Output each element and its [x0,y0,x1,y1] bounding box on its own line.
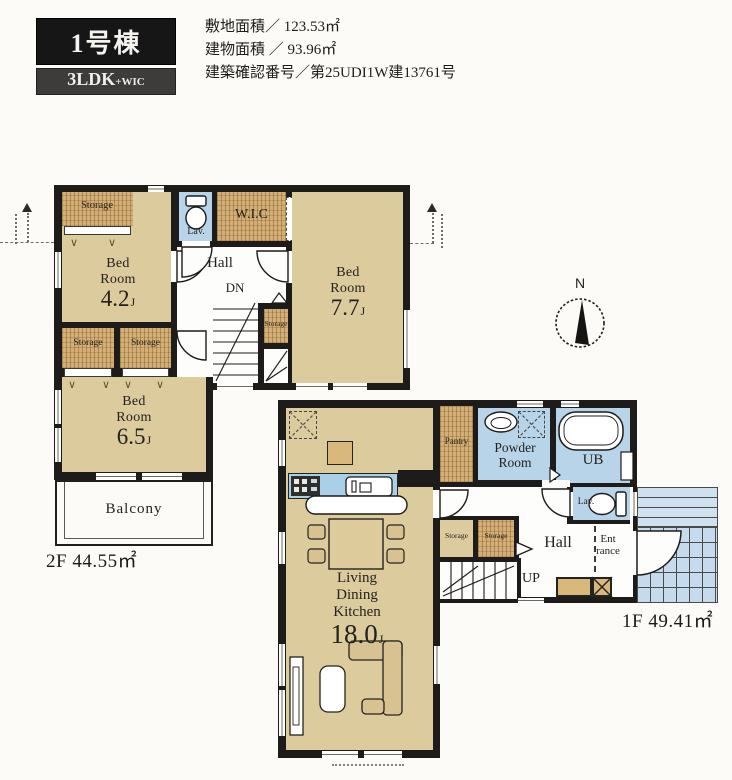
shoe-cabinet [556,577,592,597]
balcony [55,480,213,546]
window [55,390,61,424]
building-number-badge: 1号棟 [36,18,176,65]
boundary-arrow [22,203,32,212]
closet-door-strip [64,368,112,377]
window [404,310,410,368]
closet-door-strip [64,226,131,235]
boundary-dash-line [27,213,29,242]
window [279,690,285,736]
room-storage-top-left [62,192,133,226]
window [322,751,358,758]
closet-door-strip [122,368,169,377]
room-ub [556,408,630,483]
boundary-annotation [15,214,17,244]
hanger-mark: ∨ [70,237,78,248]
window [279,532,285,564]
window [518,598,544,603]
room-hall-2f [177,247,286,303]
hanger-mark: ∨ [124,379,132,390]
site-area-line: 敷地面積／ 123.53㎡ [205,16,456,39]
building-area-line: 建物面積 ／ 93.96㎡ [205,39,456,62]
room-storage-mid-1 [62,328,114,368]
door-opening [542,480,570,487]
site-area-label: 敷地面積 [205,19,265,35]
wall-lav-bottom [573,520,630,524]
hanger-mark: ∨ [68,379,76,390]
boundary-dash-line [0,242,54,243]
property-info: 敷地面積／ 123.53㎡ 建物面積 ／ 93.96㎡ 建築確認番号／第25UD… [205,16,456,85]
confirmation-number-line: 建築確認番号／第25UDI1W建13761号 [205,62,456,85]
window [55,252,61,288]
layout-badge-suffix: +WIC [115,76,145,88]
washer-space [518,411,545,438]
wall-kitchen-stub [398,470,433,487]
window [333,383,367,390]
door-opening [433,490,440,518]
door-opening [567,492,573,516]
kitchen-counter [288,473,398,499]
window [364,751,402,758]
room-storage-1f-1 [440,520,473,557]
room-wic [217,192,286,241]
separator: ／ [265,19,280,35]
window [434,646,440,684]
boundary-arrow [427,203,437,212]
layout-badge-main: 3LDK [67,69,115,90]
window [142,473,182,480]
hanger-mark: ∨ [156,379,164,390]
room-lavatory-2f [179,192,212,241]
window [96,473,136,480]
hanger-mark: ∨ [108,237,116,248]
cupboard [327,441,353,465]
room-bedroom-6_5 [62,377,206,472]
hanger-mark: ∨ [102,379,110,390]
room-lavatory-1f [573,487,630,520]
building-area-value: 93.96㎡ [288,42,337,58]
window [279,440,285,466]
scan-dots [332,764,404,768]
door-opening [630,531,637,575]
room-storage-mid-2 [120,328,171,368]
window [55,428,61,462]
boundary-dash-line [410,243,434,244]
floor-plan-page: 1号棟 3LDK +WIC 敷地面積／ 123.53㎡ 建物面積 ／ 93.96… [0,0,732,780]
confirmation-value: 第25UDI1W建13761号 [310,65,456,81]
room-ldk [286,408,433,750]
room-storage-under-stairs [264,309,288,343]
shoe-box-x [592,577,612,597]
stairs-2f-floor [213,300,258,383]
compass-north-label: N [566,276,594,291]
window [561,401,579,407]
balcony-rail [64,482,204,539]
confirmation-label: 建築確認番号 [205,65,295,81]
boundary-annotation [441,214,443,248]
separator: ／ [295,65,310,81]
separator: ／ [269,42,284,58]
window [217,383,253,390]
room-bedroom-7_7 [292,192,403,383]
room-storage-1f-2 [478,520,514,557]
compass-icon [556,299,604,347]
boundary-dash-line [432,213,434,243]
floor-2f-area-caption: 2F 44.55㎡ [46,546,137,573]
stairs-1f-floor [440,562,517,599]
room-pantry [440,406,473,482]
window [279,644,285,686]
floor-1f-area-caption: 1F 49.41㎡ [622,606,713,633]
building-area-label: 建物面積 [205,42,265,58]
corridor-2f [177,303,213,377]
layout-badge: 3LDK +WIC [36,68,176,95]
window [148,186,164,192]
window [296,383,328,390]
refrigerator-space [289,411,317,439]
entrance-porch-tiles [637,527,718,603]
entrance-divider-dashed [594,526,596,572]
window [517,401,543,407]
stairs-2f-landing [264,349,288,383]
entrance-steps [637,487,718,527]
site-area-value: 123.53㎡ [284,19,340,35]
window [631,492,637,516]
